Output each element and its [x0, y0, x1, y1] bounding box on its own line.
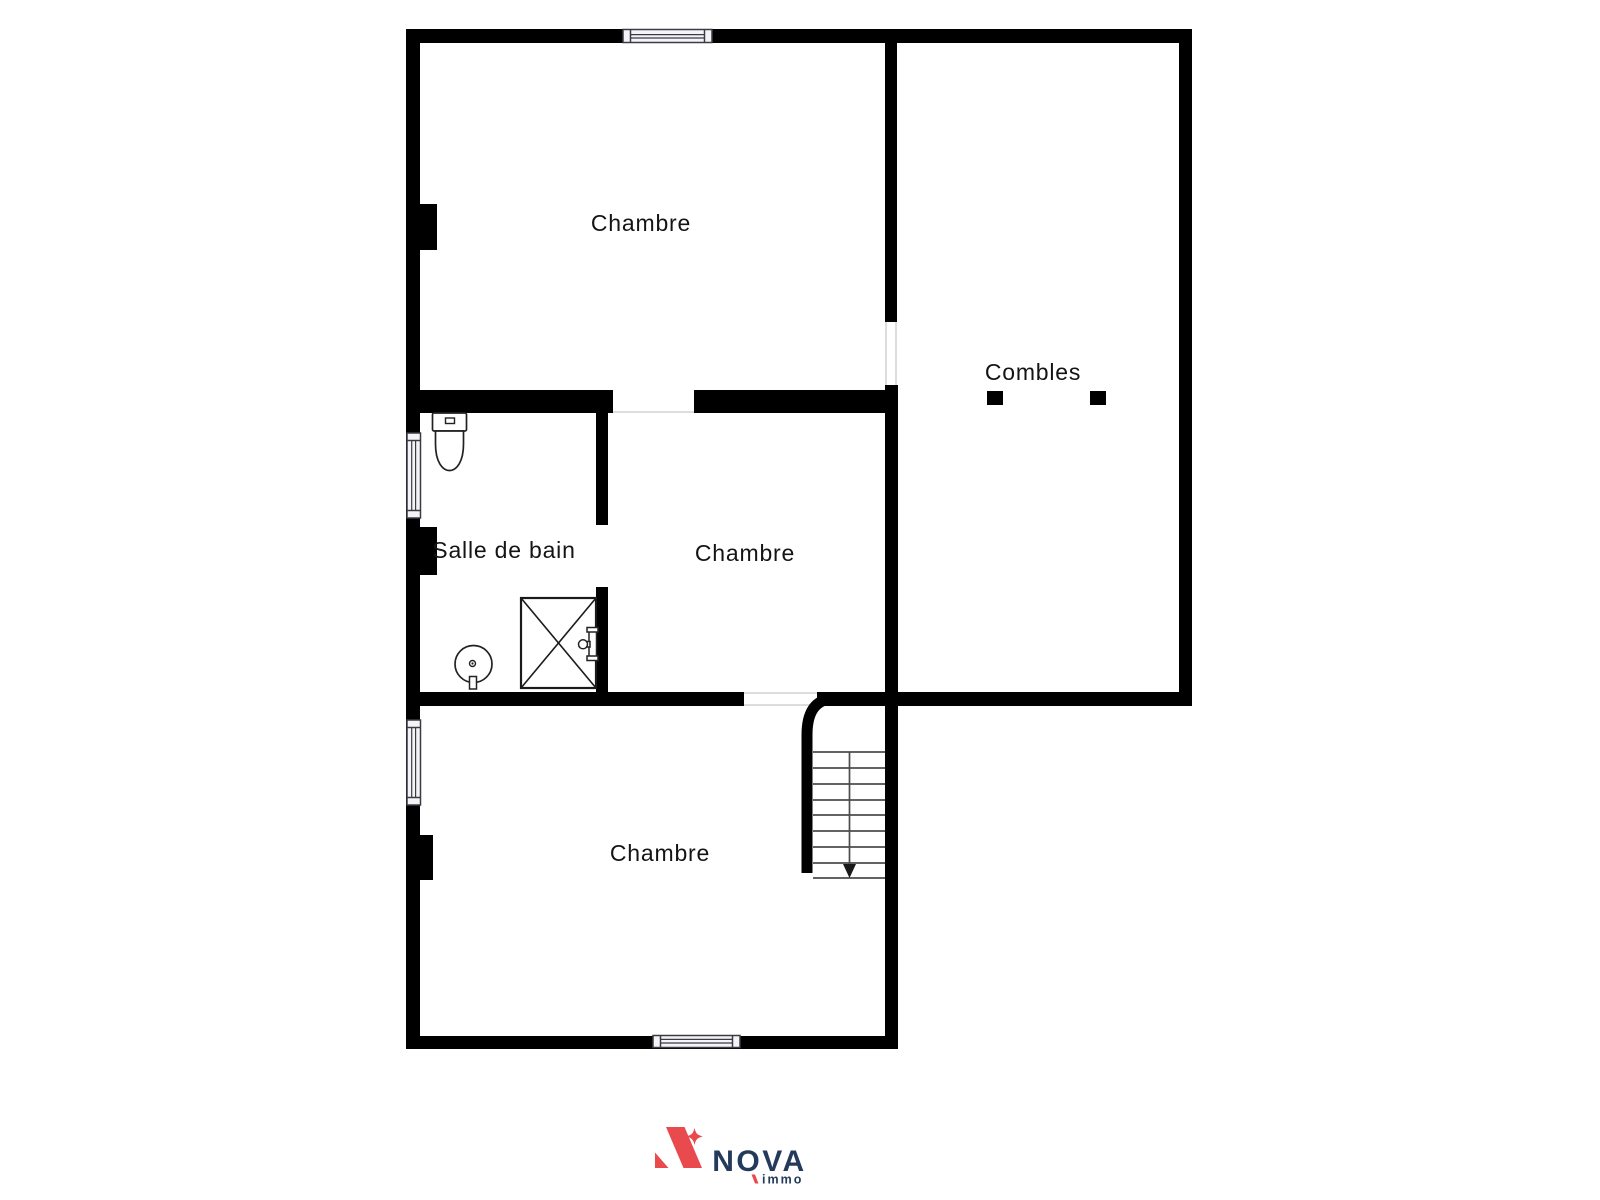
wall-left — [406, 29, 420, 1049]
window-icon-top — [623, 30, 712, 43]
toilet-icon — [433, 413, 467, 471]
door-threshold-combles-right — [895, 322, 897, 385]
wall-bath-divider-upper — [596, 413, 608, 525]
wall-chambre-top-right — [694, 390, 897, 413]
room-label-salle-de-bain: Salle de bain — [432, 537, 575, 563]
shower-icon — [521, 598, 598, 688]
brand-tagline: immo — [762, 1173, 803, 1187]
stair-arrow-down-icon — [843, 864, 856, 878]
window-icon-bottom — [653, 1036, 740, 1048]
post-icon — [987, 391, 1003, 405]
room-label-chambre-top: Chambre — [591, 210, 691, 236]
floor-plan-page: Chambre Combles Salle de bain Chambre Ch… — [0, 0, 1600, 1200]
floor-plan: Chambre Combles Salle de bain Chambre Ch… — [0, 0, 1600, 1200]
wall-pillar-chambre-bottom — [419, 835, 433, 880]
wall-mid-bottom-left — [406, 692, 744, 706]
nova-logo-mark — [655, 1127, 703, 1168]
sink-icon — [455, 646, 492, 690]
wall-bottom — [406, 1036, 898, 1049]
post-icon — [1090, 391, 1106, 405]
wall-mid-bottom-right — [817, 692, 1192, 706]
wall-divider-combles-upper — [885, 43, 897, 322]
door-threshold-stairs-bottom — [744, 704, 817, 706]
wall-divider-combles-stairs — [885, 385, 898, 1049]
wall-bath-divider-lower — [596, 587, 608, 693]
window-icon-bottom-left — [407, 720, 421, 805]
door-threshold-top-chambre — [613, 411, 694, 413]
door-openings — [613, 322, 897, 706]
wall-chambre-top-left — [406, 390, 613, 413]
wall-pillar-chambre-top — [420, 204, 437, 250]
logo-diagonal-bar — [666, 1127, 702, 1168]
wall-top — [406, 29, 1192, 43]
nova-logo: NOVA immo — [655, 1127, 807, 1187]
window-icon-bathroom — [407, 433, 421, 518]
wall-right — [1179, 29, 1192, 706]
door-threshold-stairs-top — [744, 692, 817, 694]
door-threshold-combles-left — [885, 322, 887, 385]
logo-corner-triangle — [655, 1153, 669, 1169]
room-label-combles: Combles — [985, 359, 1081, 385]
combles-posts — [987, 391, 1106, 405]
room-label-chambre-bottom: Chambre — [610, 840, 710, 866]
room-label-chambre-middle: Chambre — [695, 540, 795, 566]
staircase-down-icon — [807, 699, 885, 878]
